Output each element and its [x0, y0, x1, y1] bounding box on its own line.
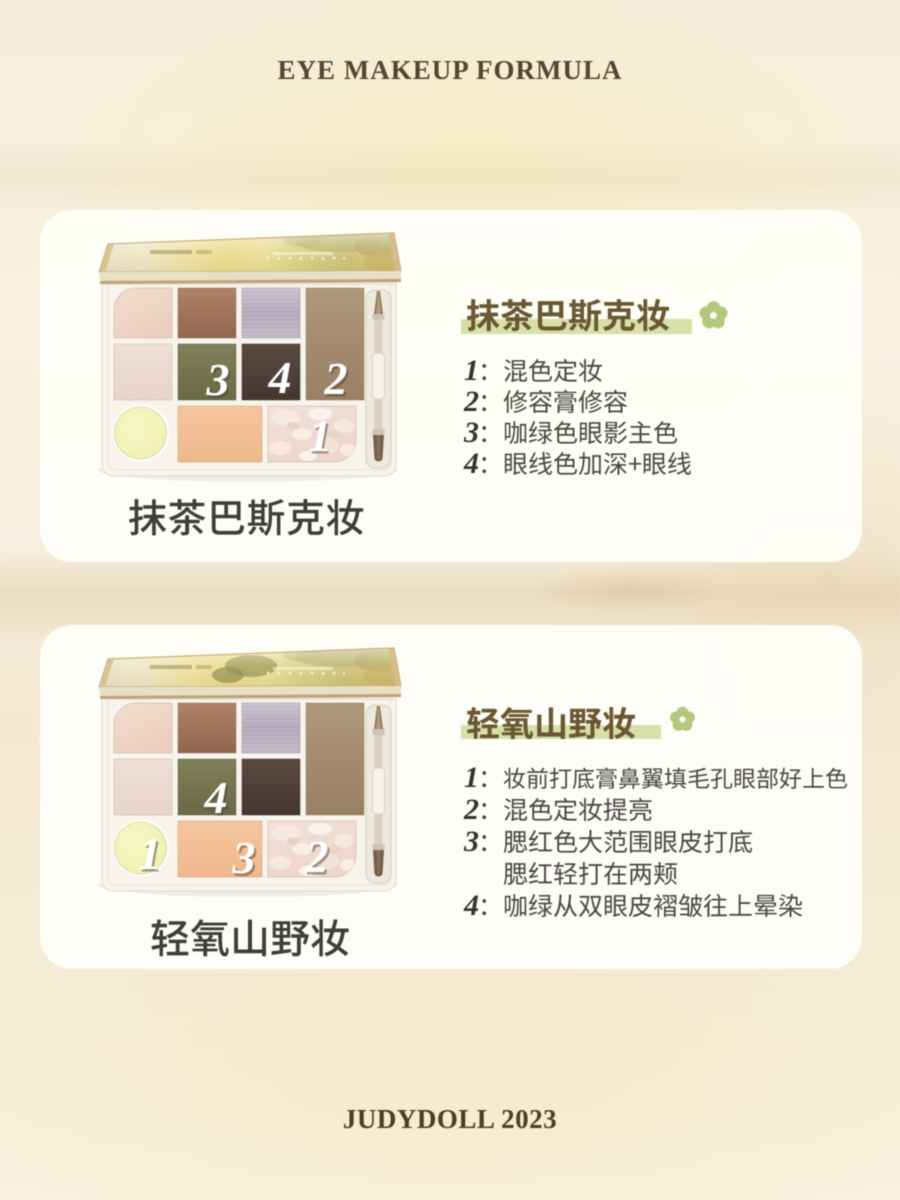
svg-text:2: 2	[463, 385, 479, 418]
svg-text:1: 1	[464, 761, 479, 794]
svg-text:4: 4	[463, 889, 479, 922]
svg-text:1: 1	[309, 410, 332, 461]
svg-text:2: 2	[305, 831, 329, 882]
svg-text:4: 4	[204, 772, 228, 823]
svg-text:4: 4	[268, 352, 292, 403]
svg-text:2: 2	[324, 353, 348, 404]
svg-text:3: 3	[463, 416, 479, 449]
svg-text:3: 3	[206, 354, 230, 405]
svg-text:1: 1	[464, 354, 479, 387]
svg-text:3: 3	[463, 825, 479, 858]
svg-text:1: 1	[139, 828, 162, 879]
svg-text:4: 4	[463, 447, 479, 480]
svg-text:3: 3	[232, 832, 256, 883]
svg-text:2: 2	[463, 793, 479, 826]
